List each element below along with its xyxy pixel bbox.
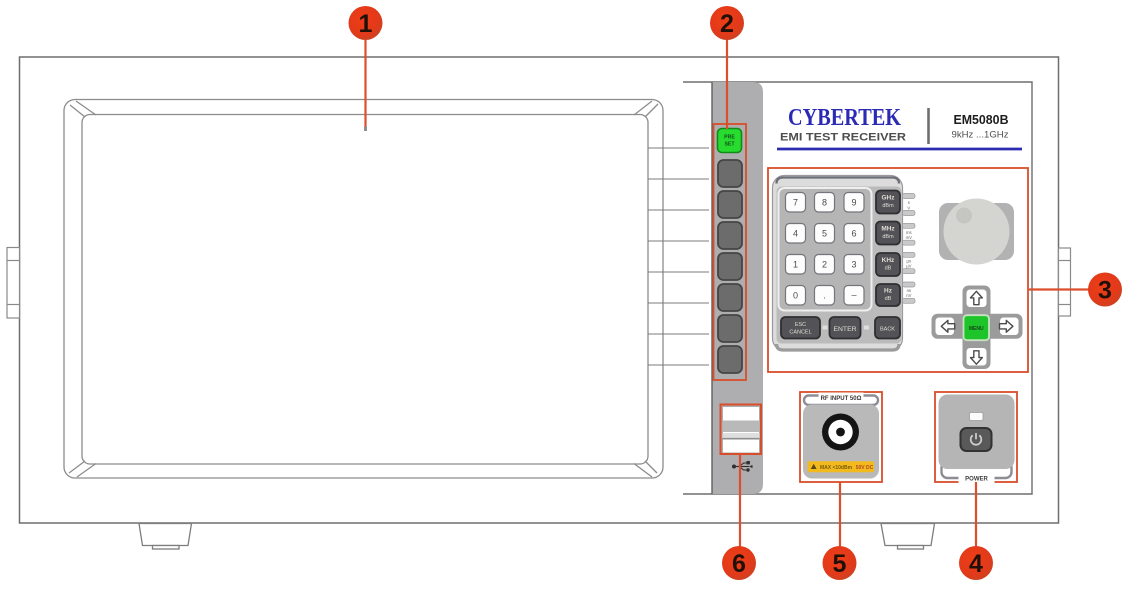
svg-text:KHz: KHz <box>882 257 895 264</box>
svg-text:2: 2 <box>720 10 734 38</box>
svg-text:CYBERTEK: CYBERTEK <box>788 105 901 131</box>
svg-text:3: 3 <box>851 260 856 270</box>
svg-text:BACK: BACK <box>880 327 895 333</box>
svg-text:0: 0 <box>793 291 798 301</box>
svg-text:dBm: dBm <box>882 203 894 209</box>
svg-text:7: 7 <box>793 198 798 208</box>
svg-text:ENTER: ENTER <box>833 326 856 333</box>
svg-text:5: 5 <box>822 229 827 239</box>
svg-text:.: . <box>823 291 826 301</box>
svg-text:µs: µs <box>907 258 912 263</box>
svg-text:8: 8 <box>822 198 827 208</box>
svg-text:nV: nV <box>906 293 911 298</box>
svg-text:MHz: MHz <box>881 226 895 233</box>
svg-text:4: 4 <box>969 550 983 578</box>
svg-text:6: 6 <box>851 229 856 239</box>
svg-text:dBm: dBm <box>882 234 894 240</box>
svg-text:PRE: PRE <box>724 135 735 141</box>
svg-text:mV: mV <box>906 235 912 240</box>
svg-text:µV: µV <box>906 264 911 269</box>
svg-text:CANCEL: CANCEL <box>789 330 811 336</box>
svg-text:9kHz ...1GHz: 9kHz ...1GHz <box>952 130 1010 140</box>
svg-text:–: – <box>851 290 856 300</box>
svg-text:MAX <10dBm: MAX <10dBm <box>820 465 853 471</box>
svg-text:EMI TEST RECEIVER: EMI TEST RECEIVER <box>780 132 906 144</box>
svg-text:5: 5 <box>833 550 847 578</box>
svg-text:GHz: GHz <box>882 195 896 202</box>
svg-text:ESC: ESC <box>795 322 806 328</box>
svg-text:MENU: MENU <box>969 326 984 332</box>
svg-text:V: V <box>907 205 910 210</box>
svg-text:3: 3 <box>1098 277 1112 305</box>
svg-text:dB: dB <box>885 296 892 302</box>
svg-text:6: 6 <box>732 550 746 578</box>
svg-text:RF INPUT 50Ω: RF INPUT 50Ω <box>821 396 862 402</box>
svg-text:SET: SET <box>724 142 735 148</box>
svg-text:1: 1 <box>359 10 373 38</box>
svg-text:1: 1 <box>793 260 798 270</box>
svg-text:50V DC: 50V DC <box>856 465 874 471</box>
svg-text:EM5080B: EM5080B <box>954 112 1009 127</box>
svg-text:Hz: Hz <box>884 288 893 295</box>
svg-text:4: 4 <box>793 229 798 239</box>
svg-text:9: 9 <box>851 198 856 208</box>
svg-text:POWER: POWER <box>965 477 988 483</box>
svg-text:dB: dB <box>885 266 892 272</box>
svg-text:2: 2 <box>822 260 827 270</box>
